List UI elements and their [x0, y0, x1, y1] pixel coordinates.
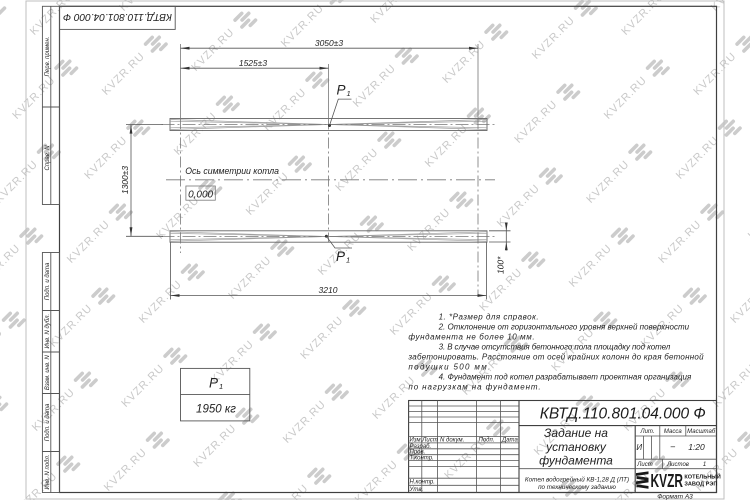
svg-text:Лит.: Лит. — [639, 429, 654, 435]
svg-text:KVZR.RU: KVZR.RU — [512, 98, 560, 146]
svg-text:Изм.Лист: Изм.Лист — [410, 438, 438, 444]
svg-text:KVZR.RU: KVZR.RU — [0, 242, 23, 290]
svg-text:P: P — [336, 249, 345, 264]
svg-text:KVZR.RU: KVZR.RU — [281, 398, 329, 446]
svg-text:ЗАВОД РЭП: ЗАВОД РЭП — [684, 482, 717, 488]
svg-text:1: 1 — [219, 382, 223, 391]
svg-text:подушки 500 мм.: подушки 500 мм. — [408, 362, 491, 371]
svg-text:Дата: Дата — [501, 438, 518, 444]
svg-text:N докум.: N докум. — [440, 438, 464, 444]
svg-text:KVZR.RU: KVZR.RU — [244, 170, 292, 218]
svg-text:KVZR.RU: KVZR.RU — [65, 218, 113, 266]
svg-text:KVZR.RU: KVZR.RU — [119, 362, 167, 410]
svg-text:KVZR.RU: KVZR.RU — [656, 218, 704, 266]
svg-text:KVZR.RU: KVZR.RU — [405, 206, 453, 254]
svg-text:Т.контр.: Т.контр. — [410, 456, 434, 462]
svg-text:фундамента не более 10 мм.: фундамента не более 10 мм. — [408, 333, 535, 342]
svg-text:KVZR.RU: KVZR.RU — [47, 302, 95, 350]
svg-text:забетонировать. Расстояние от: забетонировать. Расстояние от осей крайн… — [407, 353, 704, 362]
svg-text:KVZR.RU: KVZR.RU — [0, 326, 5, 374]
svg-text:КВТД.110.801.04.000 Ф: КВТД.110.801.04.000 Ф — [540, 406, 706, 423]
svg-text:2. Отклонение от горизонтально: 2. Отклонение от горизонтального уровня … — [438, 323, 690, 332]
svg-text:–: – — [670, 442, 676, 451]
svg-text:КОТЕЛЬНЫЙ: КОТЕЛЬНЫЙ — [684, 473, 720, 481]
svg-text:по нагрузкам на фундамент.: по нагрузкам на фундамент. — [408, 383, 541, 392]
svg-text:1: 1 — [347, 89, 351, 98]
svg-text:Утв.: Утв. — [409, 487, 424, 493]
svg-text:KVZR.RU: KVZR.RU — [728, 278, 750, 326]
svg-text:KVZR.RU: KVZR.RU — [172, 110, 220, 158]
svg-text:Перв. примен.: Перв. примен. — [45, 37, 51, 77]
svg-text:KVZR.RU: KVZR.RU — [102, 446, 150, 494]
svg-text:KVZR.RU: KVZR.RU — [674, 134, 722, 182]
svg-text:1950 кг: 1950 кг — [196, 404, 236, 416]
svg-text:KVZR.RU: KVZR.RU — [495, 182, 543, 230]
svg-text:KVZR.RU: KVZR.RU — [137, 278, 185, 326]
svg-text:1300±3: 1300±3 — [120, 166, 130, 195]
svg-text:Котел водогрейный КВ-1,28 Д (: Котел водогрейный КВ-1,28 Д (ЛТ) — [525, 476, 629, 484]
svg-text:И: И — [636, 443, 642, 452]
svg-text:Подп.: Подп. — [479, 438, 495, 444]
svg-text:1:20: 1:20 — [688, 442, 705, 452]
svg-text:KVZR.RU: KVZR.RU — [263, 482, 311, 500]
svg-text:KVZR.RU: KVZR.RU — [226, 254, 274, 302]
svg-text:КВТД.110.801.04.000 Ф: КВТД.110.801.04.000 Ф — [63, 11, 172, 22]
svg-text:100*: 100* — [495, 256, 505, 274]
svg-text:Листов: Листов — [666, 462, 689, 468]
svg-text:KVZR.RU: KVZR.RU — [191, 422, 239, 470]
svg-text:4. Фундамент под котел разраба: 4. Фундамент под котел разрабатывает про… — [439, 373, 692, 382]
svg-text:установку: установку — [545, 440, 607, 454]
svg-text:KVZR: KVZR — [651, 471, 684, 491]
svg-text:KVZR.RU: KVZR.RU — [351, 62, 399, 110]
svg-text:KVZR.RU: KVZR.RU — [189, 26, 237, 74]
svg-text:Задание на: Задание на — [544, 426, 608, 440]
svg-text:Лист: Лист — [636, 462, 652, 468]
svg-text:1. *Размер для справок.: 1. *Размер для справок. — [439, 312, 540, 321]
svg-text:KVZR.RU: KVZR.RU — [333, 146, 381, 194]
svg-text:Масштаб: Масштаб — [687, 429, 716, 435]
svg-text:KVZR.RU: KVZR.RU — [368, 0, 416, 26]
svg-text:Формат А3: Формат А3 — [657, 494, 693, 500]
svg-text:3210: 3210 — [319, 285, 338, 295]
svg-text:KVZR.RU: KVZR.RU — [0, 158, 40, 206]
svg-text:1: 1 — [346, 255, 350, 264]
svg-text:KVZR.RU: KVZR.RU — [12, 470, 60, 500]
svg-text:Инв. N подл.: Инв. N подл. — [45, 454, 51, 489]
svg-text:KVZR.RU: KVZR.RU — [746, 194, 750, 242]
svg-text:KVZR.RU: KVZR.RU — [100, 50, 148, 98]
svg-text:Справ. N: Справ. N — [45, 145, 51, 171]
svg-text:KVZR.RU: KVZR.RU — [370, 374, 418, 422]
svg-text:KVZR.RU: KVZR.RU — [602, 74, 650, 122]
svg-text:KVZR.RU: KVZR.RU — [619, 0, 667, 38]
svg-text:P: P — [337, 83, 346, 98]
svg-text:KVZR.RU: KVZR.RU — [353, 458, 401, 500]
svg-text:Подп. и дата: Подп. и дата — [45, 403, 51, 441]
svg-text:KVZR.RU: KVZR.RU — [423, 122, 471, 170]
svg-text:1525±3: 1525±3 — [239, 58, 268, 68]
svg-text:Ось симметрии котла: Ось симметрии котла — [185, 166, 279, 176]
svg-text:3. В случае отсутствия бетонно: 3. В случае отсутствия бетонного пола пл… — [439, 342, 671, 351]
svg-text:KVZR.RU: KVZR.RU — [584, 158, 632, 206]
svg-text:KVZR.RU: KVZR.RU — [154, 194, 202, 242]
svg-text:Инв. N дубл.: Инв. N дубл. — [45, 314, 51, 349]
svg-text:по техническому заданию: по техническому заданию — [538, 483, 616, 491]
svg-text:Н.контр.: Н.контр. — [410, 480, 435, 486]
svg-text:фундамента: фундамента — [539, 454, 613, 468]
svg-text:1: 1 — [703, 462, 706, 468]
svg-text:3050±3: 3050±3 — [315, 38, 344, 48]
svg-text:KVZR.RU: KVZR.RU — [388, 290, 436, 338]
svg-text:KVZR.RU: KVZR.RU — [530, 14, 578, 62]
svg-text:KVZR.RU: KVZR.RU — [567, 242, 615, 290]
svg-text:Взам. инв. N: Взам. инв. N — [45, 355, 51, 391]
svg-text:Масса: Масса — [664, 429, 682, 435]
svg-text:P: P — [209, 376, 218, 391]
svg-text:KVZR.RU: KVZR.RU — [298, 314, 346, 362]
svg-text:KVZR.RU: KVZR.RU — [691, 50, 739, 98]
svg-text:Подп. и дата: Подп. и дата — [45, 262, 51, 300]
svg-text:0,000: 0,000 — [188, 189, 213, 200]
svg-text:KVZR.RU: KVZR.RU — [440, 38, 488, 86]
